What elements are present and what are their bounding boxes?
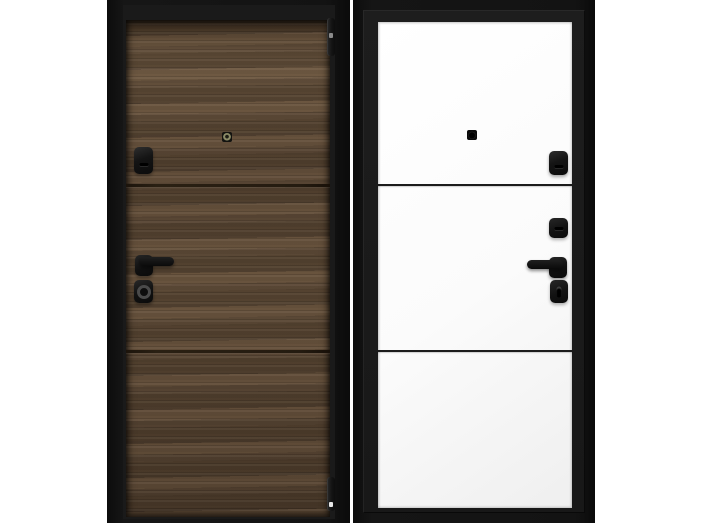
panel-seam-upper: [126, 184, 330, 187]
keyhole-slot: [139, 163, 148, 166]
lock-escutcheon: [549, 151, 568, 175]
cylinder-escutcheon: [134, 280, 153, 303]
lock-escutcheon: [134, 147, 153, 174]
door-handle: [527, 260, 563, 269]
wood-door-leaf: [126, 20, 330, 517]
door-interior-view: [353, 0, 595, 523]
peephole: [222, 132, 232, 142]
peephole-lens: [223, 133, 231, 141]
thumbturn-knob: [557, 286, 562, 297]
hinge-pin: [329, 33, 333, 38]
peephole: [467, 130, 477, 140]
panel-seam-lower: [126, 350, 330, 353]
thumbturn-escutcheon: [550, 280, 568, 303]
lock-cylinder: [137, 285, 151, 299]
hinge-top: [327, 18, 335, 56]
peephole-lens: [468, 131, 476, 139]
door-handle: [139, 257, 174, 266]
door-exterior-view: [107, 0, 350, 523]
panel-seam-upper: [378, 184, 572, 186]
keyhole-slot: [554, 165, 563, 168]
product-photo: [0, 0, 702, 523]
hinge-bottom: [327, 477, 335, 511]
panel-seam-lower: [378, 350, 572, 352]
white-door-leaf: [378, 22, 572, 508]
latch-slot: [554, 227, 563, 230]
latch-escutcheon: [549, 218, 568, 238]
hinge-pin: [329, 502, 333, 507]
